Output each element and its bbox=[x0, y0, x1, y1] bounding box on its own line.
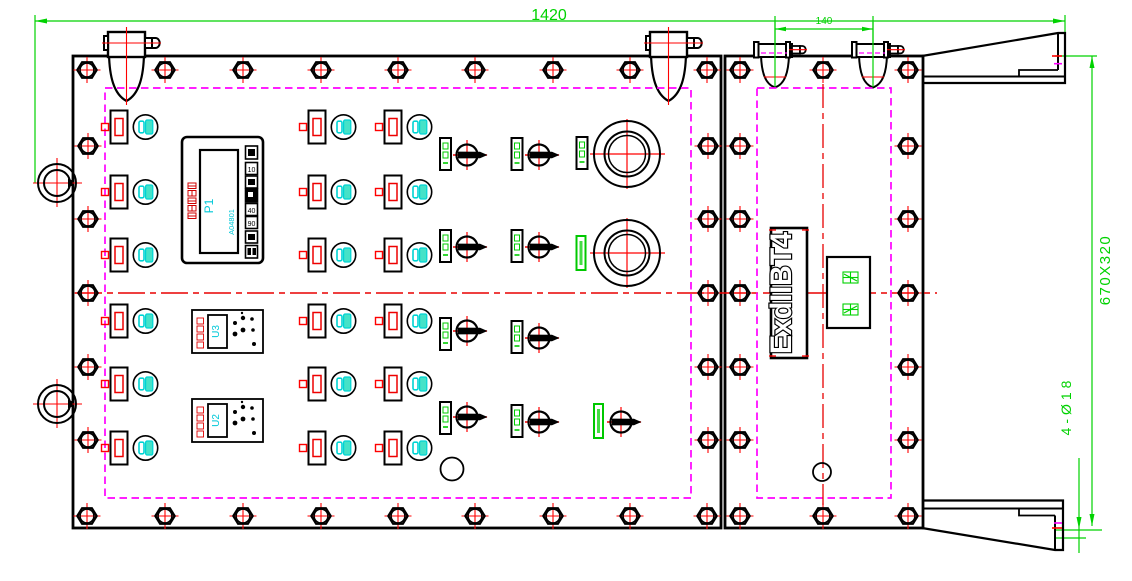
svg-text:U2: U2 bbox=[211, 414, 222, 427]
svg-text:1420: 1420 bbox=[531, 7, 567, 24]
svg-text:U3: U3 bbox=[211, 325, 222, 338]
svg-text:4-Ø18: 4-Ø18 bbox=[1058, 377, 1074, 436]
svg-text:ExdIIBT4: ExdIIBT4 bbox=[765, 232, 798, 354]
svg-text:10: 10 bbox=[248, 167, 256, 174]
svg-text:670X320: 670X320 bbox=[1097, 235, 1114, 306]
svg-text:140: 140 bbox=[816, 16, 833, 27]
svg-text:P1: P1 bbox=[202, 198, 216, 213]
svg-text:90: 90 bbox=[248, 221, 256, 228]
svg-text:A04801: A04801 bbox=[227, 209, 236, 235]
svg-text:40: 40 bbox=[248, 208, 256, 215]
